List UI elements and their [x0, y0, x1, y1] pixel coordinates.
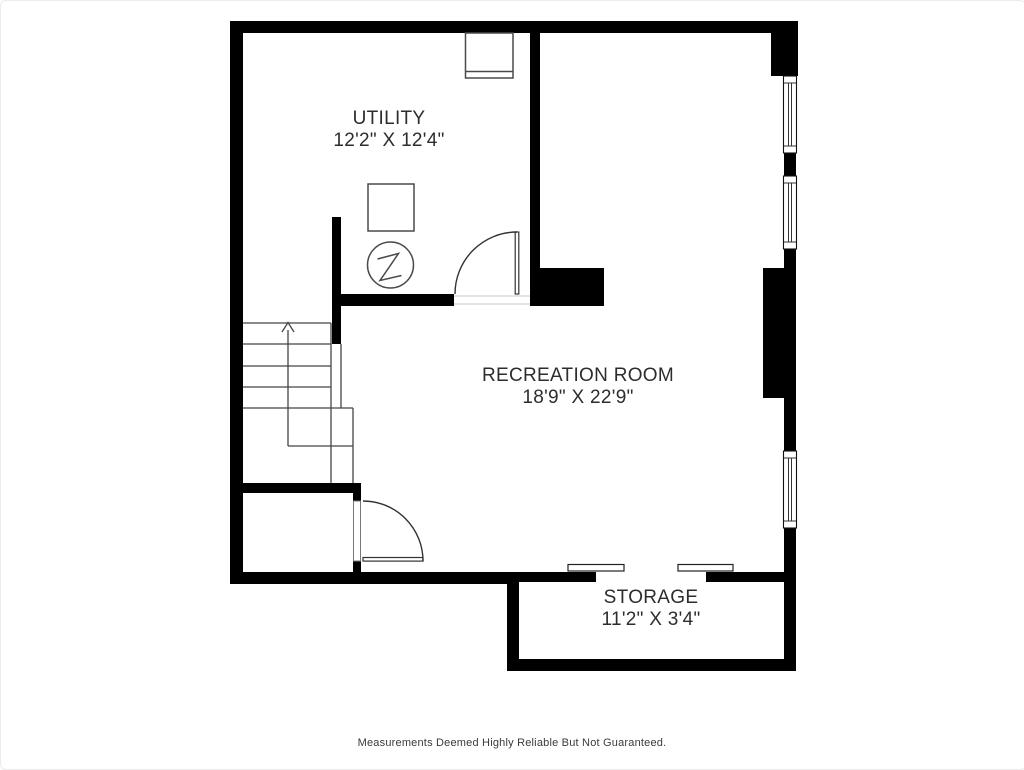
room-name: UTILITY: [333, 108, 444, 130]
staircase-icon: [243, 323, 353, 484]
disclaimer-text: Measurements Deemed Highly Reliable But …: [358, 737, 667, 749]
window-icon: [784, 451, 797, 528]
window-icon: [784, 76, 797, 153]
room-dimensions: 12'2" X 12'4": [333, 130, 444, 152]
room-label-utility: UTILITY 12'2" X 12'4": [333, 108, 444, 152]
room-label-storage: STORAGE 11'2" X 3'4": [602, 587, 701, 631]
door-icon-recreation: [354, 501, 424, 561]
room-label-recreation: RECREATION ROOM 18'9" X 22'9": [482, 365, 674, 409]
floor-plan-image: UTILITY 12'2" X 12'4" RECREATION ROOM 18…: [0, 0, 1024, 770]
sliding-door-icon-storage: [568, 565, 733, 572]
window-icon: [784, 176, 797, 249]
room-name: STORAGE: [602, 587, 701, 609]
water-heater-icon: [368, 184, 414, 231]
room-dimensions: 11'2" X 3'4": [602, 609, 701, 631]
door-icon-utility: [454, 232, 530, 304]
room-name: RECREATION ROOM: [482, 365, 674, 387]
outer-walls: [230, 21, 798, 671]
room-dimensions: 18'9" X 22'9": [482, 387, 674, 409]
laundry-sink-icon: [466, 33, 514, 78]
electrical-panel-icon: [368, 242, 414, 288]
chimney-bump: [763, 268, 796, 398]
